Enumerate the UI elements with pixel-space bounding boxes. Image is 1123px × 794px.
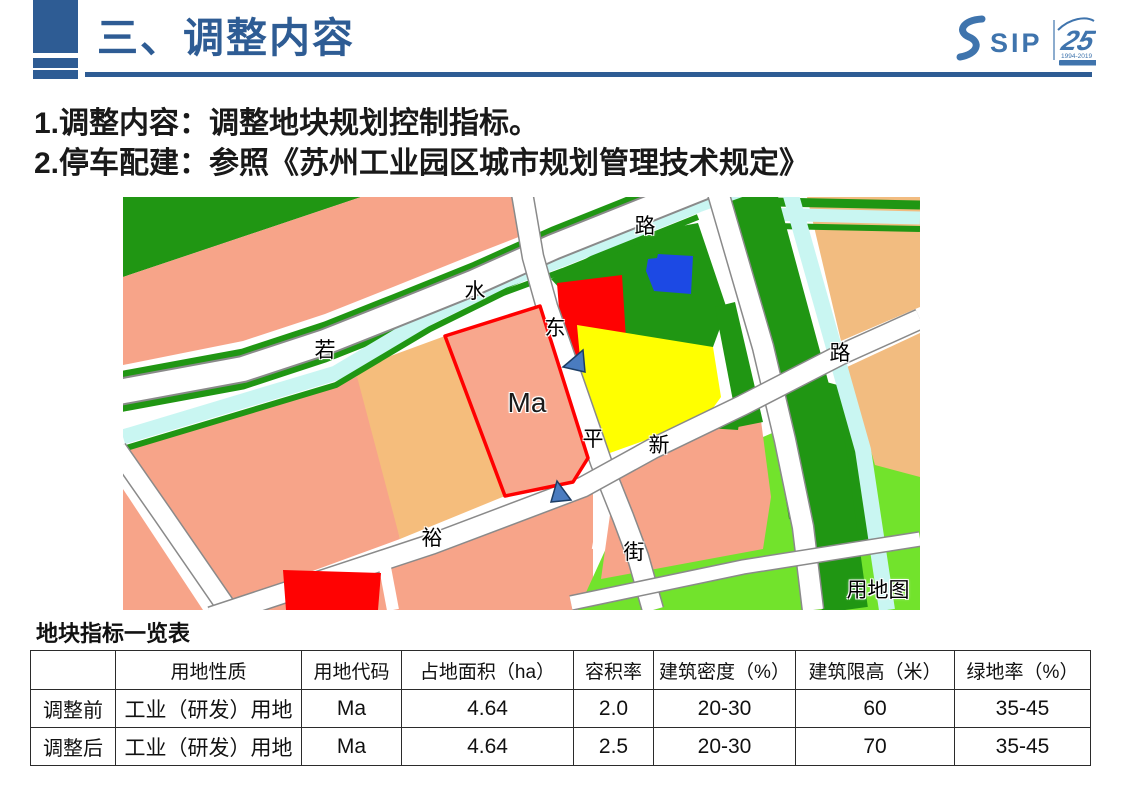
col-header-height-limit: 建筑限高（米） (796, 651, 955, 690)
map-label-ruo: 若 (315, 334, 336, 364)
row-label-before: 调整前 (31, 690, 116, 728)
land-use-map: 路 水 若 东 平 新 裕 街 路 Ma 用地图 (123, 197, 920, 610)
cell-after-density: 20-30 (654, 728, 796, 766)
plot-ma-label: Ma (508, 387, 547, 419)
cell-after-height-limit: 70 (796, 728, 955, 766)
cell-before-land-code: Ma (302, 690, 402, 728)
sip-swoosh-icon (960, 19, 982, 57)
intro-line-1: 1.调整内容：调整地块规划控制指标。 (34, 104, 809, 144)
col-header-land-use: 用地性质 (116, 651, 302, 690)
table-row-before: 调整前 工业（研发）用地 Ma 4.64 2.0 20-30 60 35-45 (31, 690, 1091, 728)
col-header-area: 占地面积（ha） (402, 651, 574, 690)
row-label-after: 调整后 (31, 728, 116, 766)
intro-line-2: 2.停车配建：参照《苏州工业园区城市规划管理技术规定》 (34, 144, 809, 184)
map-label-road-2: 路 (830, 337, 851, 367)
cell-before-area: 4.64 (402, 690, 574, 728)
header-accent-bar-1 (33, 58, 78, 68)
cell-before-height-limit: 60 (796, 690, 955, 728)
map-label-shui: 水 (465, 275, 486, 305)
cell-before-density: 20-30 (654, 690, 796, 728)
anniversary-text-strip (1059, 60, 1096, 66)
blue-building (646, 254, 693, 294)
map-label-road-1: 路 (635, 210, 656, 240)
cell-after-area: 4.64 (402, 728, 574, 766)
sip-logo: SIP 25 1994-2019 (948, 10, 1096, 68)
col-header-green-ratio: 绿地率（%） (955, 651, 1091, 690)
map-label-ping: 平 (583, 423, 604, 453)
anniversary-years: 1994-2019 (1061, 53, 1092, 60)
intro-text: 1.调整内容：调整地块规划控制指标。 2.停车配建：参照《苏州工业园区城市规划管… (34, 104, 809, 184)
header-accent-square (33, 0, 78, 53)
table-row-after: 调整后 工业（研发）用地 Ma 4.64 2.5 20-30 70 35-45 (31, 728, 1091, 766)
header-accent-bar-2 (33, 70, 78, 79)
cell-after-land-code: Ma (302, 728, 402, 766)
map-label-jie: 街 (624, 536, 645, 566)
map-label-xin: 新 (649, 429, 670, 459)
cell-after-land-use: 工业（研发）用地 (116, 728, 302, 766)
map-label-yu: 裕 (422, 522, 443, 552)
red-parcel-bottom (283, 570, 381, 610)
cell-after-green-ratio: 35-45 (955, 728, 1091, 766)
map-label-dong: 东 (545, 312, 566, 342)
col-header-land-code: 用地代码 (302, 651, 402, 690)
sip-wordmark: SIP (990, 28, 1043, 58)
table-title: 地块指标一览表 (36, 616, 190, 648)
title-underline (85, 72, 1092, 77)
cell-before-far: 2.0 (574, 690, 654, 728)
cell-before-green-ratio: 35-45 (955, 690, 1091, 728)
plot-indicators-table: 用地性质 用地代码 占地面积（ha） 容积率 建筑密度（%） 建筑限高（米） 绿… (30, 650, 1091, 766)
map-caption: 用地图 (847, 574, 910, 604)
col-header-far: 容积率 (574, 651, 654, 690)
slide: 三、调整内容 SIP 25 1994-2019 1.调整内容：调整地块规划控制指… (0, 0, 1123, 794)
cell-after-far: 2.5 (574, 728, 654, 766)
page-title: 三、调整内容 (97, 4, 355, 64)
table-header-row: 用地性质 用地代码 占地面积（ha） 容积率 建筑密度（%） 建筑限高（米） 绿… (31, 651, 1091, 690)
col-header-density: 建筑密度（%） (654, 651, 796, 690)
col-header-blank (31, 651, 116, 690)
cell-before-land-use: 工业（研发）用地 (116, 690, 302, 728)
